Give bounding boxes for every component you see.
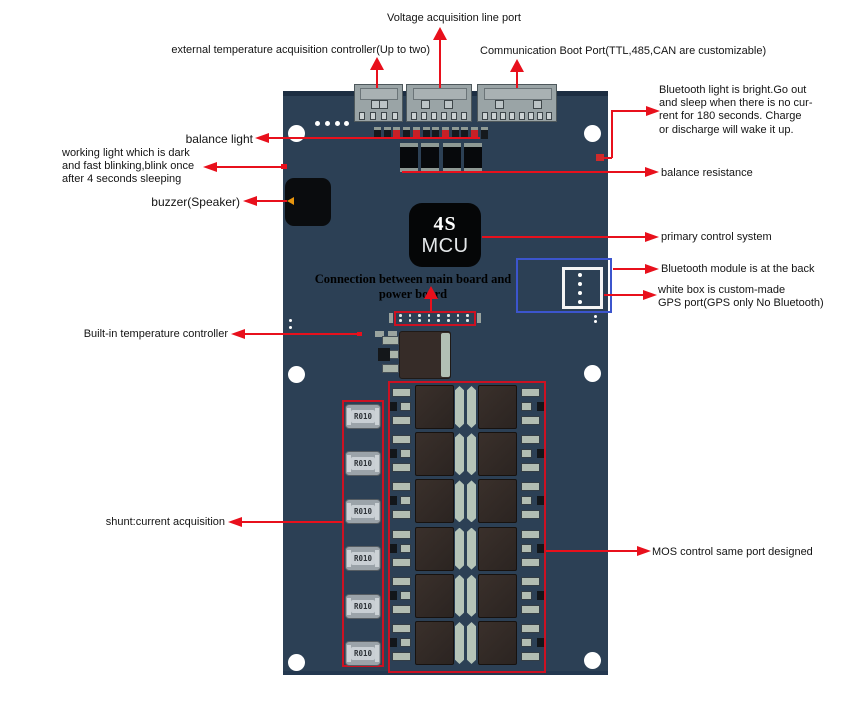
mosfet-pin	[400, 449, 411, 458]
balance-resistor	[464, 143, 482, 172]
mosfet-pin	[521, 449, 532, 458]
label-mos-control: MOS control same port designed	[652, 546, 813, 559]
annotation-line	[613, 268, 645, 270]
mosfet-pin	[521, 591, 532, 600]
arrowhead	[243, 196, 257, 206]
mcu-label-mcu: MCU	[421, 235, 468, 257]
test-point	[289, 326, 292, 329]
smd-component	[537, 402, 544, 411]
pin-header-tick	[477, 313, 481, 323]
connector-pin	[431, 112, 437, 120]
mosfet-pin	[521, 544, 532, 553]
transistor-pin	[382, 336, 399, 345]
label-connection: Connection between main board and power …	[310, 272, 516, 302]
arrowhead	[203, 162, 217, 172]
bus-bar	[467, 386, 476, 428]
mosfet	[415, 432, 454, 476]
annotation-line	[611, 110, 613, 158]
buzzer-marker	[287, 197, 294, 205]
label-bt-light: Bluetooth light is bright.Go out and sle…	[659, 84, 812, 137]
mosfet-pin	[521, 624, 540, 633]
mosfet-pin	[521, 652, 540, 661]
smd-component	[390, 591, 397, 600]
mosfet	[478, 385, 517, 429]
label-builtin-temp: Built-in temperature controller	[84, 328, 228, 341]
mosfet-pin	[521, 402, 532, 411]
gps-pin	[578, 282, 582, 286]
test-point	[325, 121, 330, 126]
label-balance-resistance: balance resistance	[661, 167, 753, 180]
arrowhead	[255, 133, 269, 143]
mosfet-pin	[521, 416, 540, 425]
connector-pin	[381, 112, 387, 120]
mosfet-pin	[392, 577, 411, 586]
smd-component	[378, 348, 390, 361]
label-gps-port: white box is custom-made GPS port(GPS on…	[658, 284, 824, 310]
connector-pin	[461, 112, 467, 120]
bus-bar	[455, 528, 464, 570]
mcu-label-4s: 4S	[433, 213, 456, 235]
mounting-hole	[584, 652, 601, 669]
annotation-line	[482, 236, 645, 238]
connector-socket	[444, 100, 453, 109]
balance-resistor	[400, 143, 418, 172]
mosfet	[415, 479, 454, 523]
bus-bar	[455, 433, 464, 475]
smd-component	[537, 449, 544, 458]
mosfet-pin	[392, 388, 411, 397]
arrowhead	[645, 232, 659, 242]
bus-bar	[467, 480, 476, 522]
mosfet-pin	[521, 638, 532, 647]
label-working-light: working light which is dark and fast bli…	[62, 147, 194, 187]
gps-white-box	[562, 267, 603, 309]
ext-temp-connector	[354, 84, 403, 122]
arrowhead	[645, 167, 659, 177]
connector-lip	[484, 88, 552, 100]
transistor-tab	[441, 333, 450, 377]
mosfet	[478, 479, 517, 523]
bus-bar	[455, 575, 464, 617]
connector-pin	[546, 112, 552, 120]
annotation-line	[430, 298, 432, 311]
arrowhead	[646, 106, 660, 116]
smd-component	[390, 449, 397, 458]
shunt-box	[342, 400, 384, 667]
connector-pin	[359, 112, 365, 120]
connector-socket	[379, 100, 388, 109]
label-balance-light: balance light	[186, 132, 253, 146]
connector-pin	[451, 112, 457, 120]
smd-component	[537, 544, 544, 553]
annotation-line	[241, 521, 343, 523]
label-bt-module: Bluetooth module is at the back	[661, 263, 814, 276]
mosfet-pin	[400, 544, 411, 553]
mosfet-pin	[392, 463, 411, 472]
builtin-temp-sensor	[357, 332, 362, 336]
connector-pin	[441, 112, 447, 120]
test-point	[289, 319, 292, 322]
mosfet-pin	[400, 591, 411, 600]
connector-lip	[360, 88, 398, 100]
mosfet-pin	[392, 530, 411, 539]
mosfet-pin	[521, 577, 540, 586]
mosfet-pin	[521, 496, 532, 505]
connector-pin	[509, 112, 515, 120]
bus-bar	[467, 622, 476, 664]
annotation-line	[439, 39, 441, 88]
mounting-hole	[288, 366, 305, 383]
mosfet	[415, 621, 454, 665]
arrowhead	[231, 329, 245, 339]
mosfet-pin	[392, 605, 411, 614]
annotation-line	[516, 71, 518, 88]
mosfet-pin	[521, 558, 540, 567]
bus-bar	[455, 480, 464, 522]
mcu-chip: 4S MCU	[409, 203, 481, 267]
balance-resistor	[421, 143, 439, 172]
mosfet-pin	[392, 482, 411, 491]
working-light-led	[281, 164, 287, 169]
label-voltage-port: Voltage acquisition line port	[387, 12, 521, 25]
arrowhead	[645, 264, 659, 274]
connector-socket	[421, 100, 430, 109]
mounting-hole	[584, 125, 601, 142]
connector-pin	[491, 112, 497, 120]
bus-bar	[467, 575, 476, 617]
annotation-line	[546, 550, 637, 552]
annotation-line	[613, 110, 646, 112]
bus-bar	[455, 386, 464, 428]
annotation-line	[268, 137, 480, 139]
mosfet-pin	[392, 624, 411, 633]
gps-pin	[578, 273, 582, 277]
test-point	[335, 121, 340, 126]
bluetooth-led	[596, 154, 604, 161]
connector-lip	[413, 88, 467, 100]
test-point	[315, 121, 320, 126]
annotation-line	[256, 200, 287, 202]
test-point	[594, 315, 597, 318]
connector-pin	[392, 112, 398, 120]
mosfet-pin	[400, 496, 411, 505]
mosfet-pin	[521, 510, 540, 519]
mosfet-pin	[392, 435, 411, 444]
connector-socket	[495, 100, 504, 109]
mounting-hole	[288, 654, 305, 671]
mosfet	[478, 574, 517, 618]
mosfet-pin	[521, 388, 540, 397]
connector-pin	[370, 112, 376, 120]
annotation-line	[604, 294, 643, 296]
arrowhead	[228, 517, 242, 527]
mosfet-pin	[392, 510, 411, 519]
label-buzzer: buzzer(Speaker)	[151, 195, 240, 209]
mosfet	[478, 432, 517, 476]
connector-pin	[421, 112, 427, 120]
comm-connector	[477, 84, 557, 122]
annotation-line	[402, 171, 645, 173]
mosfet	[415, 527, 454, 571]
connector-pin	[411, 112, 417, 120]
mosfet	[415, 385, 454, 429]
mosfet-pin	[392, 652, 411, 661]
balance-resistor	[443, 143, 461, 172]
smd-component	[390, 544, 397, 553]
mosfet-pin	[521, 605, 540, 614]
pin-header-tick	[389, 313, 393, 323]
connector-pin	[500, 112, 506, 120]
mosfet	[478, 621, 517, 665]
test-point	[344, 121, 349, 126]
label-primary-control: primary control system	[661, 231, 772, 244]
mosfet-pin	[400, 638, 411, 647]
smd-component	[390, 638, 397, 647]
mosfet-pin	[400, 402, 411, 411]
annotation-line	[216, 166, 285, 168]
test-point	[594, 320, 597, 323]
gps-pin	[578, 291, 582, 295]
bus-bar	[467, 528, 476, 570]
pin-header-box	[394, 311, 476, 326]
label-comm-port: Communication Boot Port(TTL,485,CAN are …	[480, 45, 766, 58]
connector-pin	[482, 112, 488, 120]
transistor-pin	[382, 364, 399, 373]
annotation-line	[244, 333, 361, 335]
mosfet-pin	[392, 558, 411, 567]
arrowhead	[637, 546, 651, 556]
mosfet-pin	[521, 530, 540, 539]
mosfet-pin	[521, 482, 540, 491]
connector-pin	[528, 112, 534, 120]
mosfet	[478, 527, 517, 571]
connector-pin	[519, 112, 525, 120]
gps-pin	[578, 300, 582, 304]
mounting-hole	[584, 365, 601, 382]
label-ext-temp: external temperature acquisition control…	[171, 44, 430, 57]
connector-socket	[533, 100, 542, 109]
bms-board-diagram: 4S MCU R010R010R010R010R010R010 Voltage …	[0, 0, 865, 717]
voltage-connector	[406, 84, 472, 122]
smd-component	[537, 496, 544, 505]
mosfet-pin	[521, 435, 540, 444]
annotation-line	[376, 69, 378, 88]
label-shunt: shunt:current acquisition	[106, 516, 225, 529]
mosfet	[415, 574, 454, 618]
smd-component	[537, 591, 544, 600]
mosfet-pin	[521, 463, 540, 472]
smd-component	[390, 496, 397, 505]
connector-pin	[537, 112, 543, 120]
bus-bar	[455, 622, 464, 664]
mosfet-pin	[392, 416, 411, 425]
mos-box	[388, 381, 546, 673]
smd-component	[537, 638, 544, 647]
smd-component	[390, 402, 397, 411]
mounting-hole	[288, 125, 305, 142]
arrowhead	[643, 290, 657, 300]
bus-bar	[467, 433, 476, 475]
